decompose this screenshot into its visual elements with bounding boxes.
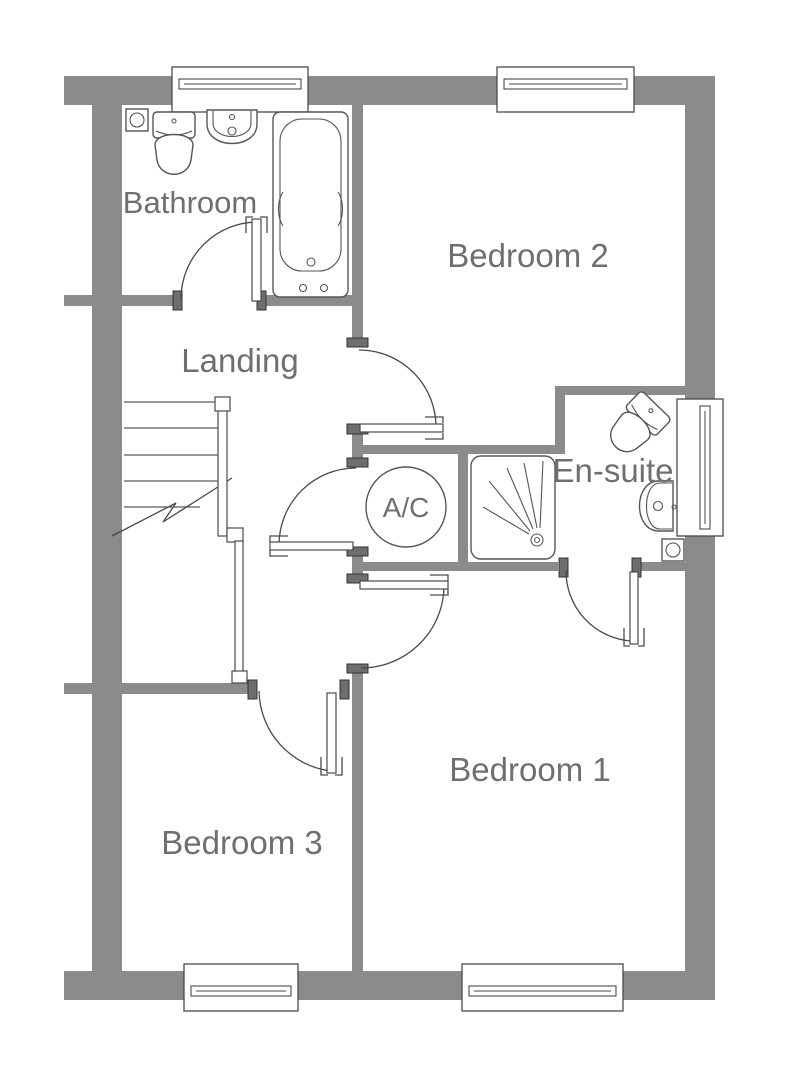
bathroom-extractor-fan [126, 109, 148, 131]
room-label-landing: Landing [181, 342, 298, 379]
wall-bathroom-bedroom2 [352, 105, 363, 338]
shower-tray [471, 456, 555, 559]
room-label-ensuite: En-suite [552, 452, 673, 489]
jamb-ac-top [347, 458, 368, 467]
bathroom-toilet [153, 112, 195, 174]
jamb-bedroom3-hinge [340, 680, 349, 699]
bedroom3-window [184, 964, 298, 1011]
bathtub [273, 112, 348, 297]
wall-right [685, 76, 715, 1000]
bathroom-window [172, 67, 308, 112]
floor-plan: Bathroom Bedroom 2 Landing En-suite A/C … [0, 0, 787, 1080]
floor-plan-page: Bathroom Bedroom 2 Landing En-suite A/C … [0, 0, 787, 1080]
wall-ensuite-bottom [635, 562, 685, 571]
wall-ensuite-jog [555, 390, 565, 450]
jamb-bedroom2-top [347, 338, 368, 347]
room-label-bedroom3: Bedroom 3 [161, 824, 322, 861]
wall-bathroom-bottom-left [64, 295, 180, 306]
wall-ensuite-top [555, 386, 685, 395]
room-label-bedroom1: Bedroom 1 [449, 751, 610, 788]
wall-ac-shower-bottom [352, 562, 558, 571]
ensuite-extractor-fan [662, 539, 684, 561]
wall-bedroom3-top [64, 683, 257, 694]
ensuite-window [677, 399, 723, 536]
wall-spine-lower [352, 668, 363, 971]
wall-ac-shower-divider [458, 445, 468, 571]
jamb-bedroom3-left [248, 680, 257, 699]
bedroom2-window [497, 67, 634, 112]
room-label-bedroom2: Bedroom 2 [447, 237, 608, 274]
room-label-airing-cupboard: A/C [383, 492, 430, 523]
bedroom1-window [462, 964, 623, 1011]
room-label-bathroom: Bathroom [123, 185, 257, 220]
bathroom-washbasin [207, 110, 257, 144]
wall-left [92, 76, 122, 1000]
